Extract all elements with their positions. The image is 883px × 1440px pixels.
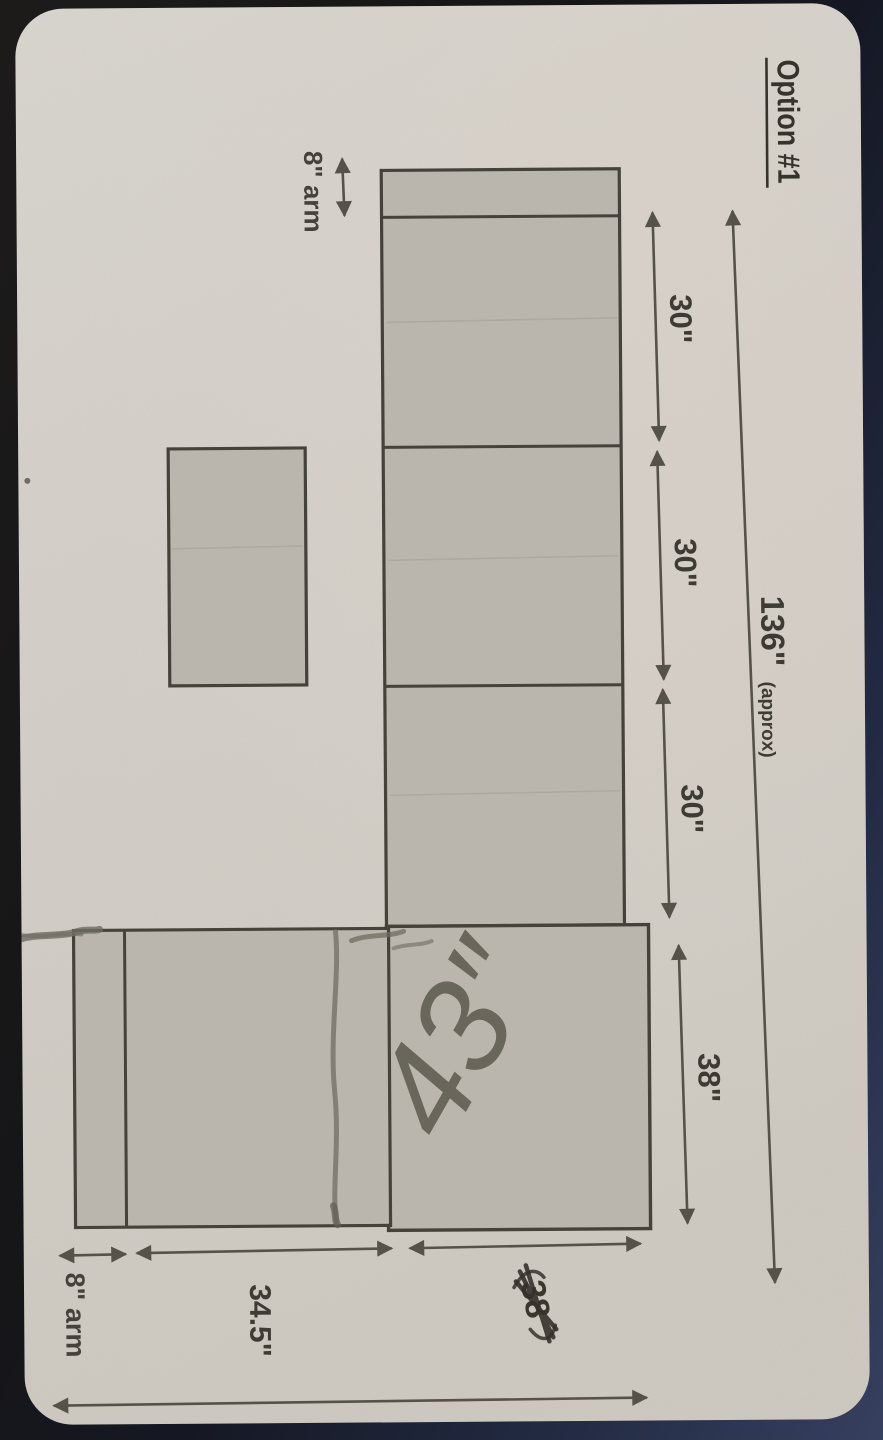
- section-divider-1: [383, 446, 621, 448]
- arm-divider-line: [382, 216, 620, 218]
- paper-speck: [24, 478, 30, 484]
- page-title: Option #1: [770, 59, 806, 183]
- left-section: [74, 928, 391, 1227]
- title-group: Option #1: [766, 57, 806, 187]
- section-divider-2: [385, 685, 623, 687]
- ottoman-block: [168, 448, 307, 686]
- diagram-photo: 43″ Option #1 8" arm 30" 30" 30" 38" 136…: [0, 0, 883, 1440]
- title-underline: [766, 58, 767, 188]
- pencil-mark-left-2: [22, 934, 82, 936]
- pencil-smudge: [333, 1206, 337, 1225]
- arm-top-dim-label: 8" arm: [298, 151, 329, 233]
- arm-divider-line: [125, 930, 127, 1227]
- overall-dim-qualifier: (approx): [757, 682, 779, 758]
- arm-bottom-dim-arrow: [60, 1254, 126, 1255]
- section-dim-label-2: 30": [668, 538, 703, 587]
- seat-bottom-dim-label: 34.5": [243, 1284, 277, 1357]
- arm-bottom-dim-label: 8" arm: [60, 1272, 91, 1357]
- overall-dim-value: 136": [754, 596, 791, 667]
- sofa-column: [381, 169, 624, 927]
- section-dim-label-1: 30": [663, 294, 698, 343]
- photo-viewer: 43″ Option #1 8" arm 30" 30" 30" 38" 136…: [0, 0, 883, 1440]
- section-dim-label-3: 30": [674, 784, 709, 833]
- section-dim-label-4: 38": [691, 1053, 726, 1102]
